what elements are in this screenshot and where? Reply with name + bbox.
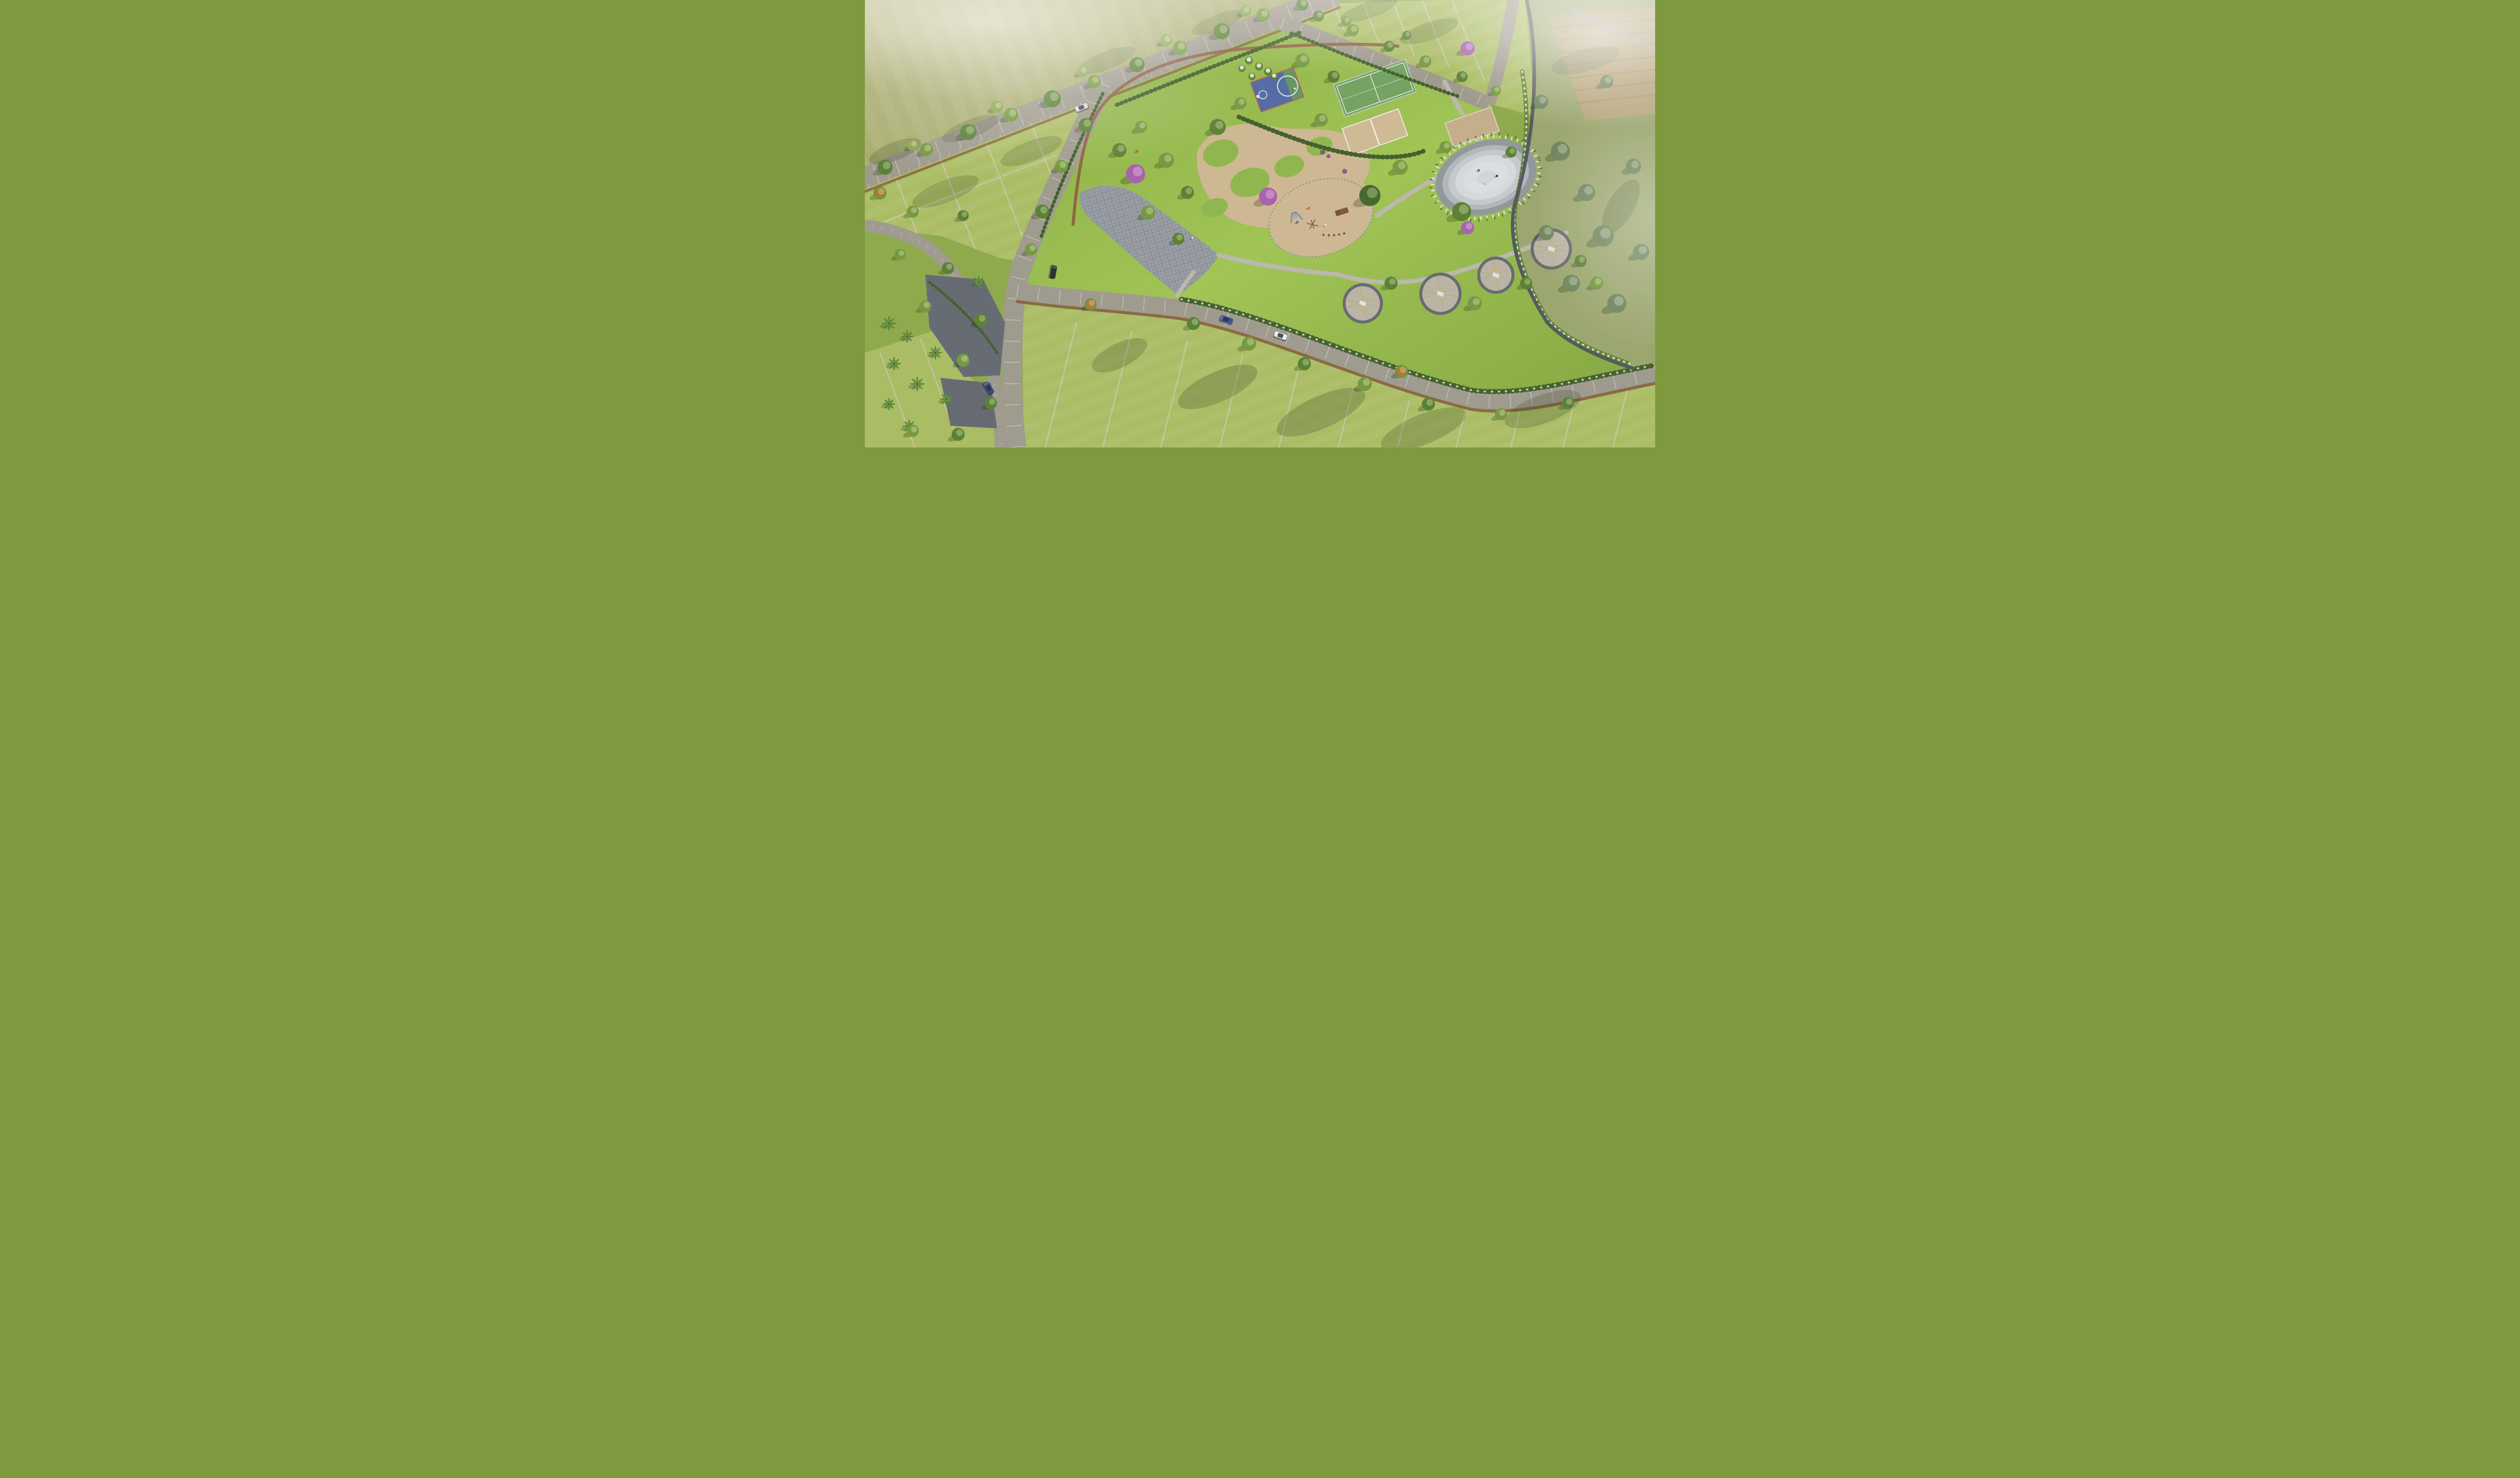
masterplan-svg (865, 0, 1655, 447)
aerial-masterplan-render (865, 0, 1655, 447)
haze-overlays (865, 0, 1655, 447)
